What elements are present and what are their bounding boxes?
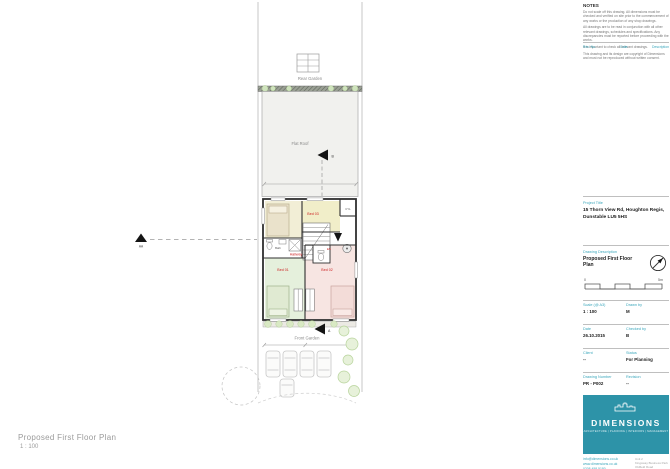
field-label: Client [583, 351, 625, 355]
field-value: 26.10.2015 [583, 333, 625, 338]
field-label: Status [626, 351, 668, 355]
field-label: Checked by [626, 327, 668, 331]
notes-paragraph: All drawings are to be read in conjuncti… [583, 25, 669, 42]
notes-section: NOTES Do not scale off this drawing. All… [583, 3, 669, 63]
revision-table-headers: Rev. No. Date Description [583, 42, 669, 49]
field-value: M [626, 309, 668, 314]
scale-bar: 0 5m [583, 276, 669, 298]
bed3-label: Bed 03 [307, 212, 318, 216]
hallway-label: Hallway [290, 253, 303, 257]
drawing-caption: Proposed First Floor Plan 1 : 100 [18, 433, 116, 450]
company-logo-block: DIMENSIONS ARCHITECTURE | PLANNING | INT… [583, 395, 669, 454]
scale-bar-end: 5m [658, 278, 663, 282]
company-name: DIMENSIONS [583, 418, 669, 428]
toilet-icon [267, 240, 273, 243]
company-tagline: ARCHITECTURE | PLANNING | INTERIORS | MA… [583, 430, 669, 433]
toilet-icon [318, 253, 324, 260]
first-floor-plan: Bath ES [262, 198, 357, 321]
drawing-description-section: Drawing Description Proposed First Floor… [583, 245, 669, 268]
drawing-description-value: Proposed First Floor Plan [583, 256, 643, 268]
rev-header: Rev. No. [583, 45, 596, 49]
bed-icon [267, 286, 289, 317]
buildings-icon [613, 401, 639, 412]
rear-garden-area: Rear Garden [297, 54, 323, 81]
section-marker-a-label: A [328, 329, 331, 333]
entry-arrow-icon [334, 233, 342, 242]
flat-roof-area: Flat Roof B [262, 92, 358, 197]
flat-roof-label: Flat Roof [292, 141, 310, 146]
bed2-label: Bed 02 [321, 268, 332, 272]
section-marker-aa-icon: AA [135, 234, 257, 249]
scale-bar-start: 0 [584, 278, 586, 282]
rev-header: Date [620, 45, 627, 49]
bed1-label: Bed 01 [277, 268, 288, 272]
drawing-sheet: Rear Garden Flat Roof B [0, 0, 670, 469]
front-garden-label: Front Garden [295, 336, 321, 341]
title-block: NOTES Do not scale off this drawing. All… [583, 0, 669, 469]
rev-header: Description [652, 45, 669, 49]
bed-icon [267, 204, 289, 236]
project-title-section: Project Title 15 Thorn View Rd, Houghton… [583, 196, 669, 221]
field-value: B [626, 333, 668, 338]
project-title-value: 15 Thorn View Rd, Houghton Regis, Dunsta… [583, 207, 669, 221]
field-value: 1 : 100 [583, 309, 625, 314]
field-label: Scale (@ A3) [583, 303, 625, 307]
notes-paragraph: Do not scale off this drawing. All dimen… [583, 10, 669, 23]
skylight-grid-icon [297, 54, 319, 72]
notes-header: NOTES [583, 3, 669, 8]
ensuite: ES [313, 245, 331, 263]
project-title-label: Project Title [583, 201, 669, 205]
field-value: For Planning [626, 357, 668, 362]
field-value: -- [626, 381, 668, 386]
dimension-line-garden [263, 343, 359, 347]
contact-block: info@dimensions.co.uk www.dimensions.co.… [583, 457, 669, 469]
bath-label: Bath [275, 246, 281, 250]
north-arrow-icon [648, 253, 668, 273]
floor-plan-drawing: Rear Garden Flat Roof B [0, 0, 582, 469]
sink-icon [279, 240, 286, 245]
section-marker-aa-label: AA [139, 245, 144, 249]
notes-paragraph: This drawing and its design are copyrigh… [583, 52, 669, 61]
field-label: Drawn by [626, 303, 668, 307]
ensuite-label: ES [327, 247, 331, 251]
bed-icon [331, 286, 354, 317]
driveway-dashed-line [258, 393, 356, 403]
field-label: Revision [626, 375, 668, 379]
caption-scale: 1 : 100 [20, 444, 116, 450]
tree-canopy-dashed-icon [222, 367, 260, 405]
field-value: -- [583, 357, 625, 362]
caption-title: Proposed First Floor Plan [18, 433, 116, 442]
field-label: Drawing Number [583, 375, 625, 379]
cupboard-label: CYL [345, 207, 351, 211]
rear-garden-label: Rear Garden [298, 76, 323, 81]
tree-icons [338, 326, 360, 397]
boundary-hatch-band [258, 86, 362, 92]
contact-address-line: Oldfield Road [635, 465, 669, 469]
front-garden-area: A Front Garden [222, 321, 360, 405]
title-block-fields: Scale (@ A3)1 : 100 Drawn byM Date26.10.… [583, 300, 669, 396]
field-value: PR - P002 [583, 381, 625, 386]
parking-cars [266, 351, 331, 397]
field-label: Date [583, 327, 625, 331]
